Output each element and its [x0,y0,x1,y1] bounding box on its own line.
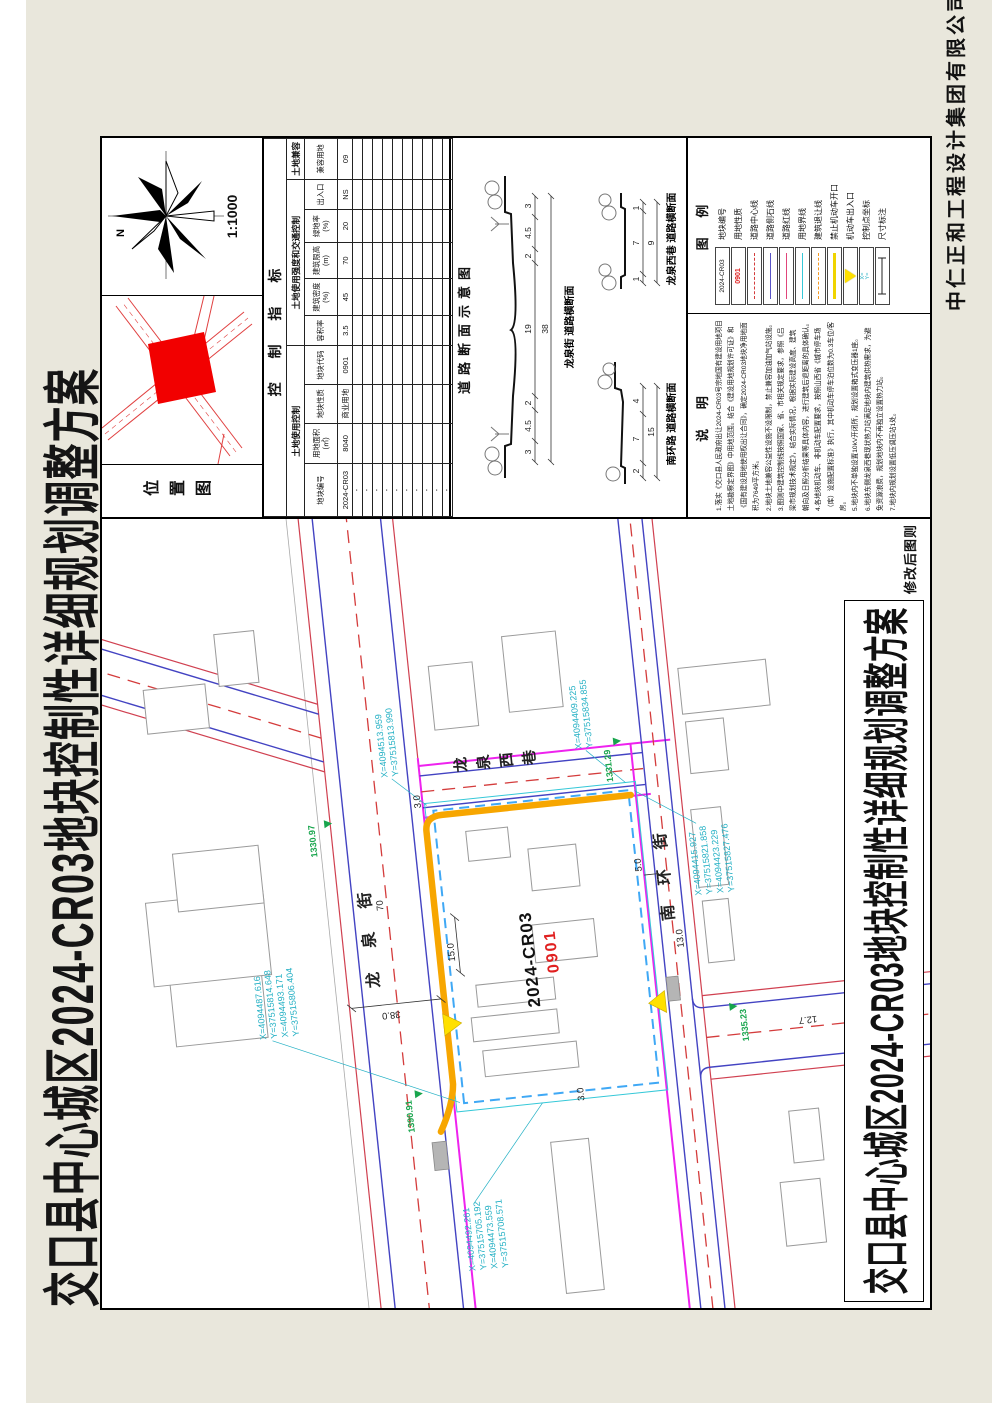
svg-text:4: 4 [631,399,641,404]
cell: 0901 [338,346,353,385]
col-header: 建筑密度 (%) [305,279,338,316]
empty-row: - [413,139,423,517]
empty-row: - [423,139,433,517]
svg-text:2: 2 [631,469,641,474]
note-line: 4.各地块机动车、非机动车配置要求，按照山西省《城市停车场 [813,319,825,511]
notes-block: 说 明 1.落实《交口县人民政府出让2024-CR03号宗地国有建设用地项目 土… [688,313,930,517]
revision-note: 修改后图则 [900,524,919,594]
svg-text:38: 38 [540,325,550,335]
svg-text:38.0: 38.0 [381,1008,401,1021]
no-opening-symbol [833,253,836,299]
legend-item: 道路红线 [778,142,794,305]
col-header: 绿地率 (%) [305,210,338,243]
land-boundary-symbol [802,253,803,299]
empty-row: - [383,139,393,517]
location-map-label: 位置图 [102,464,262,517]
svg-text:15: 15 [646,427,656,437]
scale-label: 1:1000 [224,195,240,239]
cell: 09 [338,139,353,180]
note-line: 6.地块东侧龙泉西巷现状热力站满足地块内建筑供热需求，为避 [863,319,875,511]
svg-text:70: 70 [374,900,386,912]
note-line: 7.地块内规划设置低压调压站1处。 [888,319,900,511]
svg-text:1390.91: 1390.91 [404,1100,417,1133]
col-header: 地块代码 [305,346,338,385]
empty-row: - [373,139,383,517]
section-name: 龙泉西巷 道路横断面 [665,192,678,286]
empty-row: - [353,139,363,517]
empty-row: - [433,139,443,517]
cell: 45 [338,279,353,316]
note-line: 1.落实《交口县人民政府出让2024-CR03号宗地国有建设用地项目 [714,319,726,511]
cell: 2024-CR03 [338,464,353,517]
svg-text:19: 19 [523,325,533,335]
legend-block: 图 例 2024-CR03 地块编号 0901 用地性质 道路中心线 [688,138,930,313]
street-name-east: 龙泉西巷 [451,748,545,775]
svg-text:1330.97: 1330.97 [306,825,319,858]
note-line: 房。 [838,319,850,511]
road-sections-row: 道路断面示意图 [451,138,688,517]
note-line: （库）设施配置标准》执行，其中机动车停车泊位数为0.3车位/客 [826,319,838,511]
svg-text:2: 2 [523,401,533,406]
plan-map-area: 2024-CR03 0901 龙泉街 龙泉西巷 南环街 X=4094513.95… [102,517,930,1308]
svg-text:1335.23: 1335.23 [738,1008,751,1041]
cell: NS [338,179,353,209]
svg-text:5.0: 5.0 [632,858,644,872]
plan-map-drawing: 2024-CR03 0901 龙泉街 龙泉西巷 南环街 X=4094513.95… [102,519,930,1308]
legend-item: 禁止机动车开口 [826,142,842,305]
drawing-title: 交口县中心城区2024-CR03地块控制性详细规划调整方案 [851,608,917,1295]
section-longquan-street: 3 4.5 2 19 2 4.5 3 38 龙泉街 道路横断面 [473,161,581,495]
svg-text:3: 3 [523,204,533,209]
legend-title: 图 例 [692,142,711,305]
road-sections-title: 道路断面示意图 [454,261,473,394]
svg-text:3.0: 3.0 [412,795,424,809]
section-name: 龙泉街 道路横断面 [563,286,576,370]
group-land-use: 土地使用控制 [287,346,305,517]
entrance-arrow-symbol [845,269,856,283]
parcel-data-row: 2024-CR03 8040 商业用地 0901 3.5 45 70 20 NS… [338,139,353,517]
col-header: 容积率 [305,315,338,345]
section-nanhuan-road: 2 7 4 15 南环路 道路横断面 [581,342,681,502]
vehicle-entrance-arrow [443,1012,463,1036]
compass-cell: N 1:1000 [102,138,262,295]
street-name-north: 龙泉街 [352,868,384,990]
legend-item: 尺寸标注 [874,142,890,305]
note-line: 梁市规划技术规定》，结合实际情况，根据实际建设高度、建筑 [788,319,800,511]
notes-legend-row: 说 明 1.落实《交口县人民政府出让2024-CR03号宗地国有建设用地项目 土… [688,138,930,517]
col-header: 兼容用地 [305,139,338,180]
cell: 3.5 [338,315,353,345]
svg-text:15.0: 15.0 [445,943,458,963]
section-name: 南环路 道路横断面 [665,383,678,466]
note-line: 免资源浪费，规划地块内不再独立设置热力站。 [875,319,887,511]
svg-text:7: 7 [631,437,641,442]
legend-item: 2024-CR03 地块编号 [714,142,730,305]
svg-text:9: 9 [646,240,656,245]
street-name-south: 南环街 [648,812,678,921]
design-company: 中仁正和工程设计集团有限公司 [940,0,969,311]
north-diagonal-road [102,593,325,800]
location-parcel-highlight [148,332,216,404]
longquan-street-road [279,519,485,1308]
drawing-frame: 2024-CR03 0901 龙泉街 龙泉西巷 南环街 X=4094513.95… [100,136,932,1310]
road-redline-symbol [786,253,787,299]
note-line: 《国有建设用地使用权出让合同》，确定2024-CR03地块净用地面 [739,319,751,511]
col-header: 地块性质 [305,384,338,423]
legend-item: 道路侧石线 [762,142,778,305]
land-use-symbol: 0901 [735,268,742,284]
cell: 70 [338,242,353,279]
plan-sheet: 交口县中心城区2024-CR03地块控制性详细规划调整方案 中仁正和工程设计集团… [0,0,992,1403]
centerline-symbol [754,253,755,299]
col-header: 出入口 [305,179,338,209]
svg-text:3: 3 [523,450,533,455]
curb-line-symbol [770,253,771,299]
col-header: 用地面积 (㎡) [305,423,338,464]
legend-item: 机动车出入口 [842,142,858,305]
svg-text:13.0: 13.0 [674,929,687,949]
note-line: 2.地块土地兼容公益性设施不设限制，禁止兼容加油加气站设施。 [764,319,776,511]
note-line: 3.图则中建筑控制线按照国家、省、市相关规定要求，参照《吕 [776,319,788,511]
setback-line-symbol [818,253,819,299]
legend-item: 道路中心线 [746,142,762,305]
north-label: N [115,230,127,238]
table-title: 控 制 指 标 [264,139,287,517]
legend-item: 用地界线 [794,142,810,305]
cell: 商业用地 [338,384,353,423]
drawing-title-bar: 交口县中心城区2024-CR03地块控制性详细规划调整方案 [844,600,924,1302]
svg-text:2: 2 [523,254,533,259]
col-header: 地块编号 [305,464,338,517]
parcel-code-symbol: 2024-CR03 [719,259,726,292]
location-row: 位置图 [102,138,264,517]
note-line: 土地勘察定界图》中用地范围。结合《建设用地规划许可证》和 [726,319,738,511]
svg-text:1: 1 [631,276,641,281]
note-line: 5.地块内不单独设置10kV开闭所，规划设置箱式变压器1座。 [850,319,862,511]
svg-text:4.5: 4.5 [523,420,533,432]
dimension-symbol [877,254,887,298]
compass-rose: N [102,142,230,292]
empty-row: - [403,139,413,517]
note-line: 朝向及日照分析结果等具体内容，进行建筑后退距离的具体确认。 [801,319,813,511]
group-compat: 土地兼容 [287,139,305,180]
control-table-row: 控 制 指 标 土地使用控制 土地使用强度和交通控制 土地兼容 地块编号 用地面… [264,138,451,517]
svg-text:7: 7 [631,240,641,245]
location-map [102,295,262,464]
legend-item: 0901 用地性质 [730,142,746,305]
svg-text:3.0: 3.0 [575,1087,587,1101]
svg-text:1: 1 [631,205,641,210]
group-intensity: 土地使用强度和交通控制 [287,179,305,346]
empty-row: - [363,139,373,517]
notes-title: 说 明 [692,319,711,511]
control-indicator-table: 控 制 指 标 土地使用控制 土地使用强度和交通控制 土地兼容 地块编号 用地面… [264,138,453,517]
cell: 8040 [338,423,353,464]
col-header: 建筑限高 (m) [305,242,338,279]
location-map-drawing [102,296,260,464]
coord-symbol: X= Y= [861,273,872,280]
empty-row: - [393,139,403,517]
legend-item: X= Y= 控制点坐标 [858,142,874,305]
sheet-title: 交口县中心城区2024-CR03地块控制性详细规划调整方案 [26,368,110,1307]
section-longquan-west-lane: 1 7 1 9 龙泉西巷 道路横断面 [581,153,681,313]
legend-item: 建筑退让线 [810,142,826,305]
info-panel: 位置图 [102,138,930,517]
note-line: 积为7649平方米。 [751,319,763,511]
svg-text:12.7: 12.7 [798,1013,818,1026]
svg-text:4.5: 4.5 [523,227,533,239]
cell: 20 [338,210,353,243]
svg-text:1331.29: 1331.29 [602,749,615,782]
